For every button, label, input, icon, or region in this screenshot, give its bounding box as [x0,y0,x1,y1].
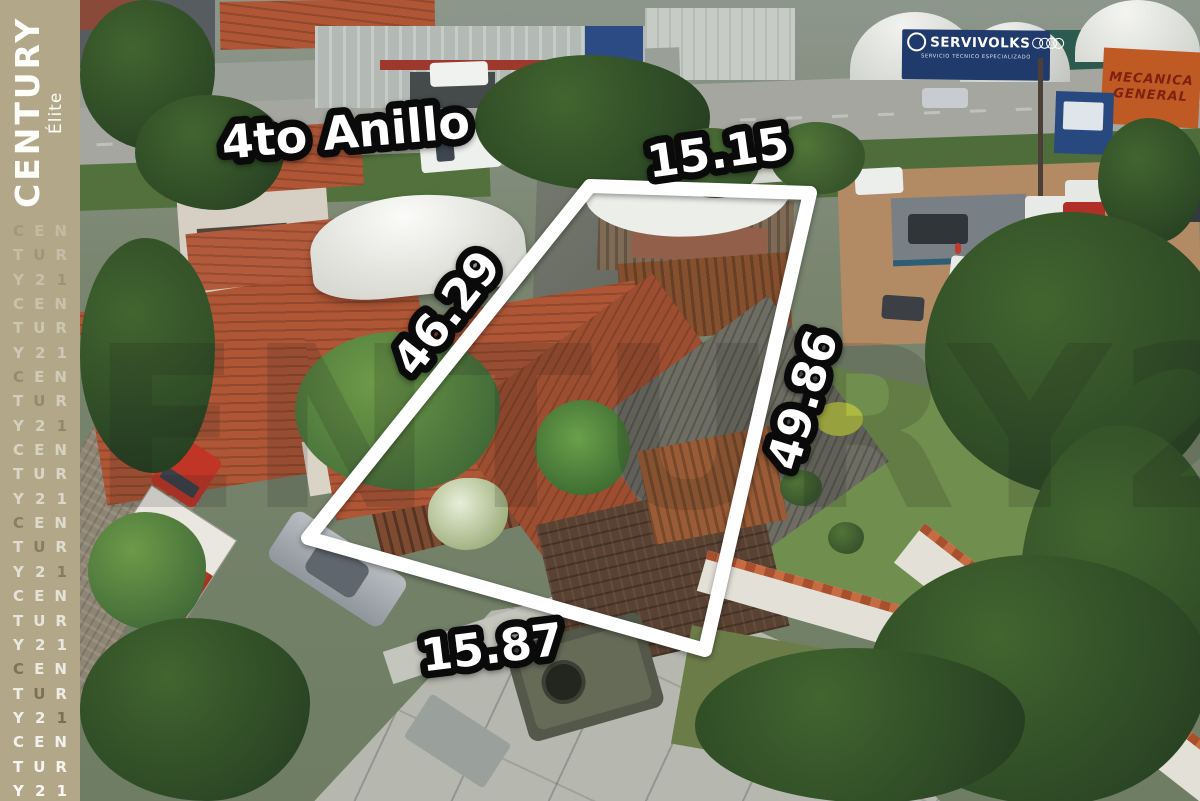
pattern-letter: 1 [57,565,67,580]
pattern-letter: C [13,370,24,385]
pattern-letter: T [13,467,23,482]
pattern-letter: E [34,735,44,750]
pattern-letter: Y [13,565,24,580]
pattern-letter: Y [13,711,24,726]
pattern-letter: 2 [35,784,45,799]
aerial-photo: SERVIVOLKS SERVICIO TÉCNICO ESPECIALIZAD… [80,0,1200,801]
pattern-letter: C [13,516,24,531]
pattern-letter: E [34,370,44,385]
pattern-letter: N [54,370,67,385]
pattern-letter: R [55,540,67,555]
pattern-letter: R [55,394,67,409]
pattern-row: Y21 [13,711,67,726]
listing-image: SERVIVOLKS SERVICIO TÉCNICO ESPECIALIZAD… [0,0,1200,801]
pattern-letter: C [13,224,24,239]
pattern-letter: R [55,248,67,263]
pattern-letter: 2 [35,565,45,580]
pattern-row: Y21 [13,565,67,580]
pattern-row: TUR [13,321,67,336]
street-label: 4to Anillo [219,94,472,169]
pattern-row: Y21 [13,492,67,507]
property-boundary [308,186,810,650]
property-overlay: 4to Anillo 15.15 46.29 49.86 15.87 [80,0,1200,801]
pattern-letter: 2 [35,273,45,288]
pattern-letter: N [54,589,67,604]
pattern-letter: N [54,516,67,531]
pattern-letter: Y [13,273,24,288]
century21-brand: CENTURY 21 [8,0,47,208]
measurement-top: 15.15 [644,116,792,188]
pattern-letter: E [34,224,44,239]
pattern-letter: T [13,394,23,409]
pattern-letter: C [13,589,24,604]
pattern-letter: R [55,760,67,775]
pattern-row: Y21 [13,419,67,434]
measurement-bottom: 15.87 [418,613,566,683]
pattern-letter: Y [13,784,24,799]
pattern-row: CEN [13,735,67,750]
pattern-letter: E [34,297,44,312]
pattern-letter: 1 [57,346,67,361]
pattern-letter: R [55,614,67,629]
pattern-letter: C [13,662,24,677]
elite-subbrand: Élite [46,92,66,134]
pattern-letter: T [13,321,23,336]
pattern-row: TUR [13,614,67,629]
brand-letter-pattern: CENTURY21CENTURY21CENTURY21CENTURY21CENT… [0,224,80,799]
pattern-row: CEN [13,443,67,458]
pattern-letter: C [13,443,24,458]
pattern-row: TUR [13,760,67,775]
pattern-row: CEN [13,370,67,385]
pattern-letter: C [13,735,24,750]
pattern-row: CEN [13,516,67,531]
pattern-letter: 2 [35,346,45,361]
pattern-row: CEN [13,662,67,677]
pattern-letter: 1 [57,638,67,653]
pattern-letter: U [33,614,45,629]
pattern-letter: U [33,540,45,555]
pattern-letter: N [54,224,67,239]
pattern-row: TUR [13,467,67,482]
pattern-letter: U [33,248,45,263]
pattern-letter: 2 [35,492,45,507]
pattern-letter: R [55,467,67,482]
pattern-letter: C [13,297,24,312]
pattern-row: TUR [13,687,67,702]
pattern-letter: U [33,321,45,336]
pattern-letter: N [54,297,67,312]
pattern-letter: U [33,687,45,702]
pattern-letter: 2 [35,419,45,434]
pattern-row: Y21 [13,346,67,361]
pattern-letter: 2 [35,638,45,653]
pattern-letter: Y [13,346,24,361]
pattern-letter: 1 [57,492,67,507]
pattern-letter: Y [13,638,24,653]
pattern-letter: 1 [57,419,67,434]
pattern-row: TUR [13,540,67,555]
pattern-letter: Y [13,419,24,434]
pattern-row: CEN [13,297,67,312]
pattern-row: Y21 [13,273,67,288]
brand-sidebar: CENTURY 21 Élite CENTURY21CENTURY21CENTU… [0,0,80,801]
pattern-letter: 2 [35,711,45,726]
pattern-letter: E [34,443,44,458]
pattern-letter: E [34,589,44,604]
pattern-row: Y21 [13,784,67,799]
pattern-row: CEN [13,589,67,604]
pattern-letter: N [54,662,67,677]
pattern-letter: T [13,248,23,263]
pattern-letter: N [54,443,67,458]
pattern-letter: Y [13,492,24,507]
pattern-letter: T [13,760,23,775]
pattern-letter: 1 [57,273,67,288]
pattern-letter: E [34,662,44,677]
pattern-row: CEN [13,224,67,239]
pattern-letter: U [33,467,45,482]
pattern-letter: U [33,760,45,775]
pattern-letter: U [33,394,45,409]
pattern-letter: T [13,687,23,702]
pattern-row: TUR [13,394,67,409]
pattern-letter: E [34,516,44,531]
pattern-letter: 1 [57,784,67,799]
pattern-letter: N [54,735,67,750]
pattern-letter: R [55,687,67,702]
pattern-row: TUR [13,248,67,263]
pattern-letter: T [13,540,23,555]
pattern-row: Y21 [13,638,67,653]
pattern-letter: 1 [57,711,67,726]
pattern-letter: T [13,614,23,629]
pattern-letter: R [55,321,67,336]
